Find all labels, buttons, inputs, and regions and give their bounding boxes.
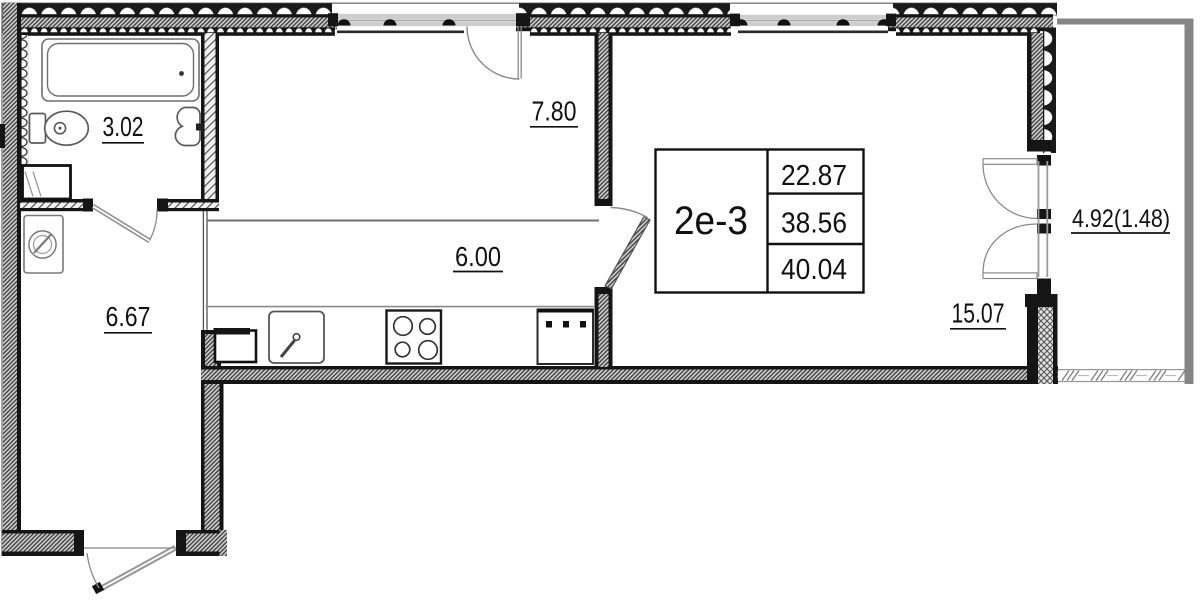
svg-text:3.02: 3.02 bbox=[103, 111, 144, 142]
svg-text:2е-3: 2е-3 bbox=[674, 199, 748, 243]
svg-text:4.92(1.48): 4.92(1.48) bbox=[1072, 205, 1170, 233]
svg-text:22.87: 22.87 bbox=[781, 160, 847, 192]
svg-text:15.07: 15.07 bbox=[952, 298, 1005, 329]
svg-text:6.00: 6.00 bbox=[455, 241, 501, 272]
svg-text:7.80: 7.80 bbox=[532, 96, 577, 127]
svg-text:40.04: 40.04 bbox=[781, 254, 847, 286]
svg-text:6.67: 6.67 bbox=[106, 301, 151, 332]
svg-text:38.56: 38.56 bbox=[781, 208, 847, 240]
